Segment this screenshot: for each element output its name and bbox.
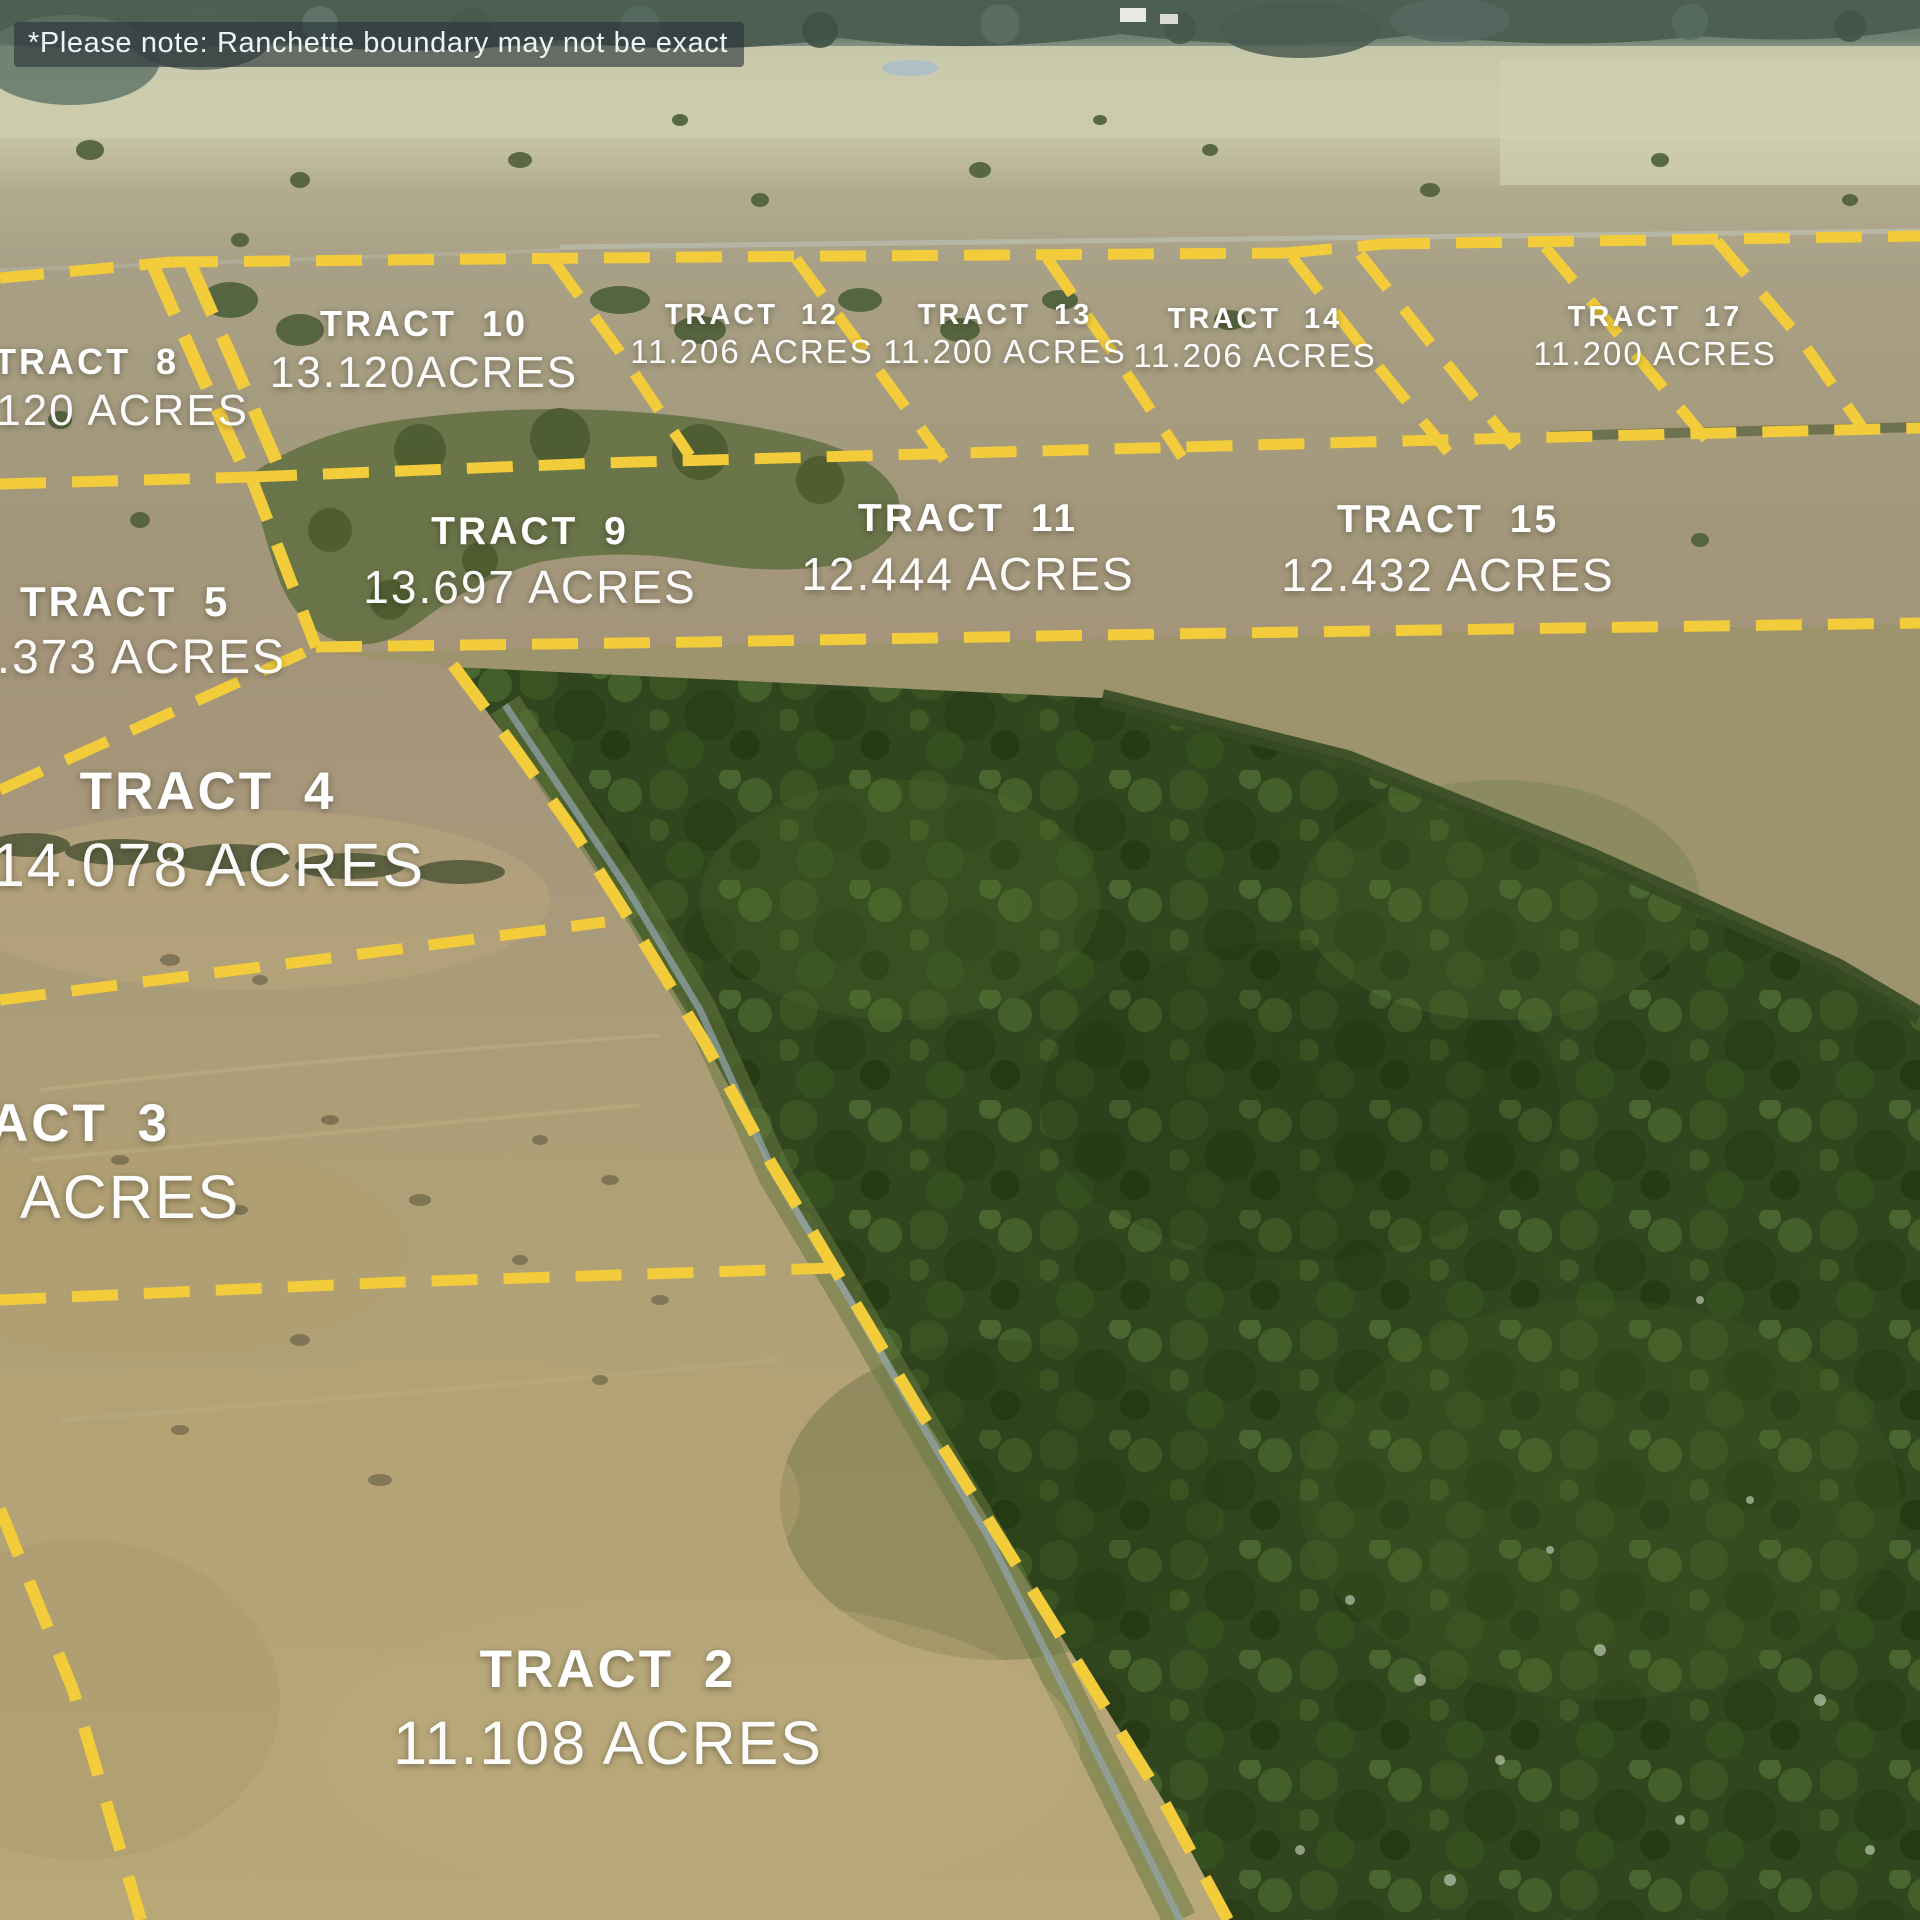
- tract-acres: 12.432 ACRES: [1281, 550, 1614, 602]
- tract-name: TRACT 17: [1533, 301, 1777, 333]
- tract-11-label: TRACT 11 12.444 ACRES: [801, 497, 1134, 600]
- tract-10-label: TRACT 10 13.120ACRES: [270, 304, 578, 398]
- aerial-photo: [0, 0, 1920, 1920]
- tract-name: TRACT 5: [20, 578, 286, 625]
- tract-2-label: TRACT 2 11.108 ACRES: [393, 1640, 823, 1778]
- tract-acres: 11.206 ACRES: [1133, 338, 1377, 375]
- tract-acres: ACRES: [20, 1163, 240, 1231]
- tract-name: TRACT 13: [883, 299, 1127, 331]
- tract-5-label: TRACT 5 2.373 ACRES: [20, 578, 286, 685]
- tract-name: TRACT 14: [1133, 303, 1377, 335]
- disclaimer-note: *Please note: Ranchette boundary may not…: [14, 22, 744, 67]
- tract-14-label: TRACT 14 11.206 ACRES: [1133, 303, 1377, 375]
- tract-name: TRACT 11: [801, 497, 1134, 541]
- tract-name: TRACT 9: [363, 510, 696, 554]
- tract-acres: 13.697 ACRES: [363, 562, 696, 614]
- tract-8-label: TRACT 8 .120 ACRES: [0, 342, 249, 436]
- tract-12-label: TRACT 12 11.206 ACRES: [630, 299, 874, 371]
- tract-acres: 2.373 ACRES: [0, 631, 286, 685]
- tract-name: ACT 3: [0, 1094, 240, 1153]
- tract-acres: 11.108 ACRES: [393, 1709, 823, 1777]
- tract-17-label: TRACT 17 11.200 ACRES: [1533, 301, 1777, 373]
- tract-name: TRACT 15: [1281, 498, 1614, 542]
- tract-name: TRACT 12: [630, 299, 874, 331]
- tract-acres: 11.200 ACRES: [1533, 336, 1777, 373]
- tract-acres: 11.200 ACRES: [883, 334, 1127, 371]
- tract-acres: .120 ACRES: [0, 386, 249, 435]
- tract-acres: 13.120ACRES: [270, 348, 578, 397]
- tract-acres: 12.444 ACRES: [801, 549, 1134, 601]
- tract-9-label: TRACT 9 13.697 ACRES: [363, 510, 696, 613]
- ranch-tract-map: *Please note: Ranchette boundary may not…: [0, 0, 1920, 1920]
- tract-acres: 14.078 ACRES: [0, 831, 425, 899]
- tract-4-label: TRACT 4 14.078 ACRES: [0, 762, 425, 900]
- tract-3-label: ACT 3 ACRES: [0, 1094, 240, 1232]
- tract-name: TRACT 4: [0, 762, 425, 821]
- tract-acres: 11.206 ACRES: [630, 334, 874, 371]
- tract-name: TRACT 8: [0, 342, 249, 382]
- tract-name: TRACT 2: [393, 1640, 823, 1699]
- tract-name: TRACT 10: [270, 304, 578, 344]
- tract-15-label: TRACT 15 12.432 ACRES: [1281, 498, 1614, 601]
- tract-13-label: TRACT 13 11.200 ACRES: [883, 299, 1127, 371]
